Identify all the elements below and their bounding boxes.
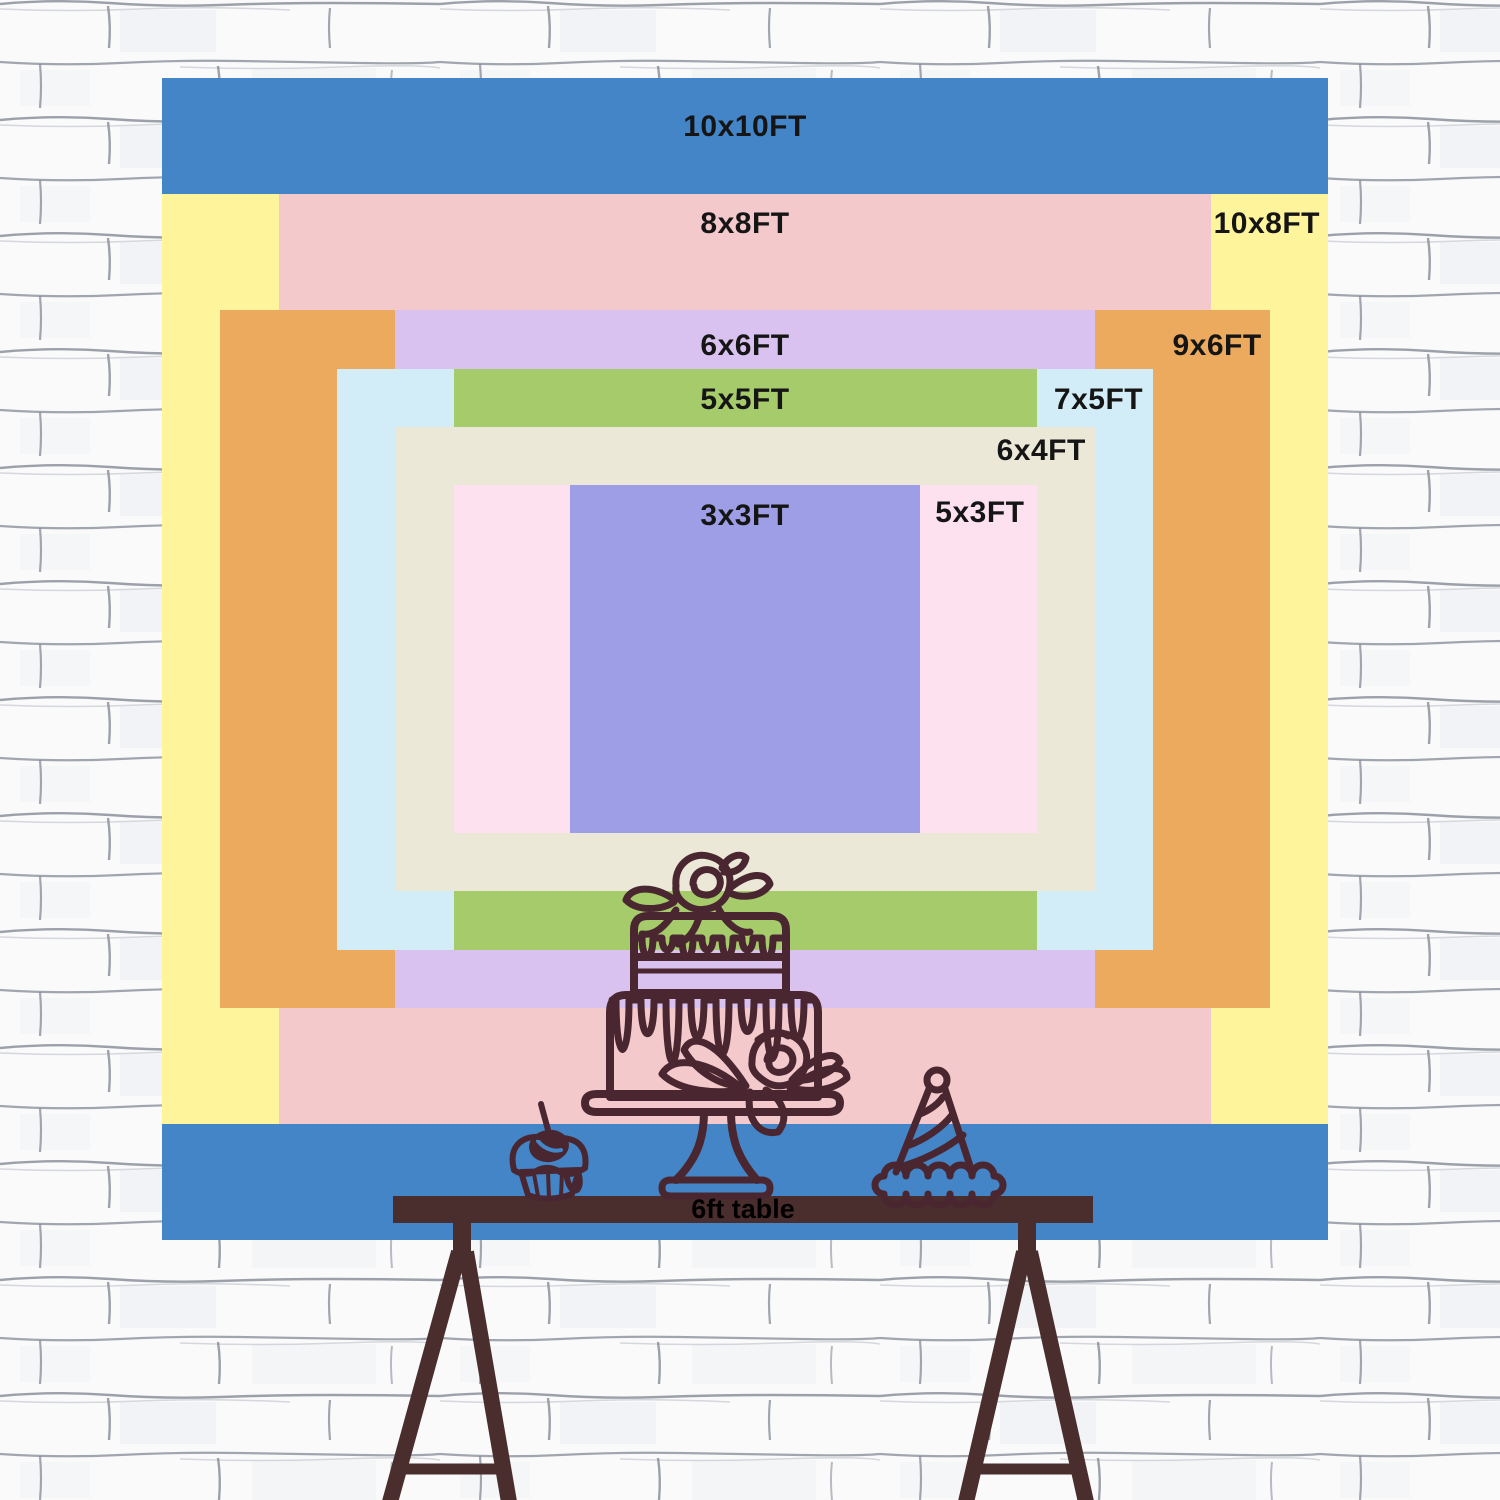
size-label-9x6ft: 9x6FT bbox=[1172, 329, 1261, 363]
size-label-5x5ft: 5x5FT bbox=[700, 383, 789, 417]
right-trestle-legs bbox=[966, 1218, 1086, 1500]
size-label-7x5ft: 7x5FT bbox=[1054, 383, 1143, 417]
left-trestle-legs bbox=[390, 1218, 509, 1500]
size-label-6x6ft: 6x6FT bbox=[700, 329, 789, 363]
table-label: 6ft table bbox=[393, 1196, 1093, 1223]
size-label-6x4ft: 6x4FT bbox=[997, 434, 1086, 468]
size-label-8x8ft: 8x8FT bbox=[700, 207, 789, 241]
backdrop-size-chart: 10x10FT10x8FT8x8FT9x6FT6x6FT7x5FT5x5FT6x… bbox=[0, 0, 1500, 1500]
size-rect-3x3ft bbox=[570, 485, 920, 834]
size-label-10x8ft: 10x8FT bbox=[1214, 207, 1320, 241]
size-label-10x10ft: 10x10FT bbox=[683, 110, 807, 144]
size-label-5x3ft: 5x3FT bbox=[935, 496, 1024, 530]
backdrop-size-rectangles: 10x10FT10x8FT8x8FT9x6FT6x6FT7x5FT5x5FT6x… bbox=[162, 78, 1328, 1240]
size-label-3x3ft: 3x3FT bbox=[700, 499, 789, 533]
